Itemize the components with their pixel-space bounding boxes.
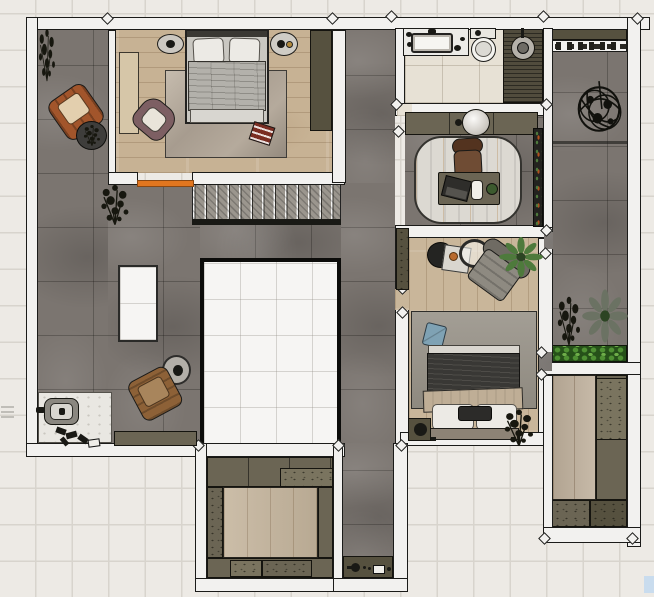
closet-island-floor bbox=[223, 487, 318, 558]
bedroom1-wardrobe[interactable] bbox=[310, 30, 332, 131]
terrace-plant-gray-green[interactable] bbox=[581, 288, 629, 344]
terrace-floor-seam bbox=[552, 141, 627, 144]
fixture-center bbox=[59, 408, 65, 415]
wall-closet-top bbox=[195, 443, 345, 457]
terrace-shelf-items bbox=[556, 42, 620, 50]
hall-floor-landing bbox=[200, 224, 341, 258]
wall-bedroom1-right bbox=[332, 30, 346, 183]
bed2-leg-left bbox=[431, 437, 436, 441]
closet-bottom-shelf-a[interactable] bbox=[230, 560, 262, 577]
bedroom1-nightstand-left[interactable] bbox=[157, 34, 184, 54]
closet-top-shelf[interactable] bbox=[280, 468, 333, 487]
desk-plant[interactable] bbox=[486, 183, 498, 195]
entry-shoe-4[interactable] bbox=[88, 438, 101, 448]
bed1-headboard bbox=[187, 31, 267, 37]
wall-hedge-band bbox=[543, 362, 641, 375]
wall-right-outer bbox=[627, 17, 641, 547]
console-kettle-spout bbox=[347, 566, 352, 569]
toilet-button bbox=[475, 30, 481, 36]
console-box bbox=[373, 565, 385, 574]
wall-corridor-bottom bbox=[333, 578, 408, 592]
skylight-void bbox=[118, 265, 158, 342]
hall-table-plant bbox=[79, 123, 105, 147]
corner-note-blue bbox=[644, 576, 654, 593]
bedroom2-plant-dark[interactable] bbox=[496, 406, 542, 448]
console-dot-1 bbox=[363, 566, 366, 569]
nightstand-gold-item bbox=[286, 41, 293, 48]
toilet[interactable] bbox=[469, 28, 497, 64]
study-window-planter bbox=[533, 128, 543, 227]
shower-valve-stem bbox=[521, 28, 524, 38]
wall-terrace-left-upper bbox=[543, 28, 553, 228]
study-vessel-basin[interactable] bbox=[462, 109, 490, 136]
vanity-accessory-3 bbox=[454, 45, 461, 51]
vanity-accessory-1 bbox=[406, 32, 412, 37]
nightstand-decor bbox=[166, 40, 175, 48]
bathroom-vanity[interactable] bbox=[403, 28, 469, 56]
bedroom1-bed[interactable] bbox=[185, 29, 269, 124]
wall-bedroom1-bottom-b bbox=[192, 172, 345, 185]
hall-floor-right-strip bbox=[341, 183, 395, 443]
nightstand-plant bbox=[414, 423, 427, 436]
desk-cup[interactable] bbox=[471, 180, 483, 200]
hall-sideboard[interactable] bbox=[114, 431, 197, 446]
shower-drain-plate[interactable] bbox=[511, 36, 535, 60]
entry-floor-fixture[interactable] bbox=[44, 398, 79, 425]
nightstand-decor-2 bbox=[277, 40, 285, 48]
bedroom2-wardrobe[interactable] bbox=[396, 228, 409, 290]
closet-left-cabinet[interactable] bbox=[207, 487, 223, 558]
console-dot-2 bbox=[368, 567, 371, 570]
wall-bedroom1-left bbox=[108, 30, 116, 183]
storage-cabinet-top-section[interactable] bbox=[596, 378, 627, 440]
wall-closet-bottom bbox=[195, 578, 345, 592]
stairs[interactable] bbox=[192, 184, 341, 220]
stairs-edge bbox=[192, 219, 341, 225]
table-cup bbox=[173, 365, 183, 376]
fixture-handle bbox=[36, 407, 45, 413]
drain-center bbox=[517, 42, 529, 54]
basin-tap bbox=[455, 119, 462, 126]
hall-plant-mid[interactable] bbox=[93, 181, 137, 227]
hall-plant-top-left[interactable] bbox=[34, 24, 60, 84]
bedroom2-table-orange-item bbox=[449, 252, 458, 261]
corridor-console[interactable] bbox=[343, 556, 393, 578]
wall-closet-left bbox=[195, 443, 207, 592]
bed1-duvet bbox=[188, 61, 266, 111]
storage-bottom-cabinet-a[interactable] bbox=[552, 500, 590, 527]
floor-plan-screenshot: { "scene": { "kind": "architectural floo… bbox=[0, 0, 654, 597]
vanity-accessory-4 bbox=[460, 37, 465, 41]
terrace-potted-tree[interactable] bbox=[570, 78, 628, 140]
bed1-foot-blanket bbox=[190, 109, 264, 123]
vanity-basin bbox=[411, 33, 453, 53]
wall-corridor-right bbox=[393, 443, 408, 592]
bedroom2-plant-green[interactable] bbox=[498, 236, 544, 278]
bedroom1-nightstand-right[interactable] bbox=[270, 32, 298, 56]
storage-room-floor bbox=[552, 375, 596, 500]
storage-bottom-cabinet-b[interactable] bbox=[590, 500, 627, 527]
bed2-dark-cushion bbox=[458, 406, 492, 421]
vanity-faucet bbox=[428, 29, 436, 34]
closet-right-cabinet[interactable] bbox=[318, 487, 333, 558]
wall-storage-left bbox=[543, 375, 553, 540]
bedroom1-door-threshold bbox=[137, 180, 194, 187]
toilet-seat bbox=[475, 41, 492, 57]
vanity-accessory-2 bbox=[407, 42, 412, 47]
console-kettle bbox=[351, 563, 360, 572]
wall-corridor-left bbox=[333, 443, 343, 592]
edge-smudge bbox=[1, 403, 14, 418]
console-dot-3 bbox=[387, 567, 391, 571]
upper-corridor-floor bbox=[346, 30, 395, 183]
wall-storage-bottom bbox=[543, 527, 641, 543]
bedroom2-nightstand[interactable] bbox=[408, 418, 431, 441]
stairwell-void bbox=[200, 258, 341, 448]
closet-bottom-shelf-b[interactable] bbox=[262, 560, 312, 577]
